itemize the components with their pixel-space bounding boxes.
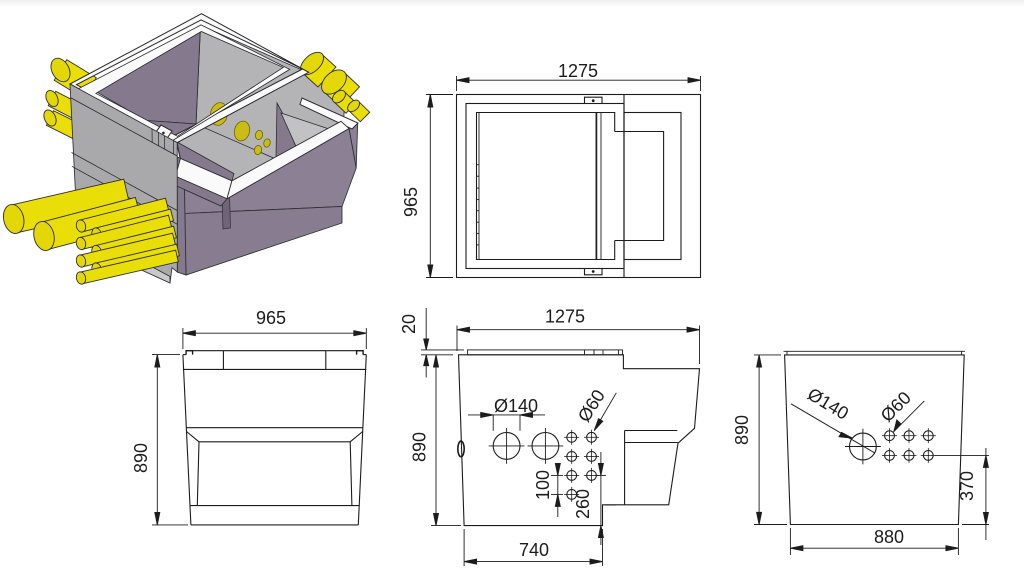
svg-text:965: 965 [401,187,421,217]
svg-text:1275: 1275 [558,61,598,81]
svg-text:965: 965 [256,308,286,328]
svg-text:890: 890 [732,415,752,445]
svg-text:740: 740 [519,540,549,560]
svg-text:890: 890 [131,443,151,473]
svg-text:1275: 1275 [545,307,585,327]
svg-text:20: 20 [399,314,419,334]
svg-text:260: 260 [573,489,593,519]
svg-text:890: 890 [410,432,430,462]
svg-text:100: 100 [533,470,553,500]
svg-text:370: 370 [957,471,977,501]
svg-text:880: 880 [874,527,904,547]
